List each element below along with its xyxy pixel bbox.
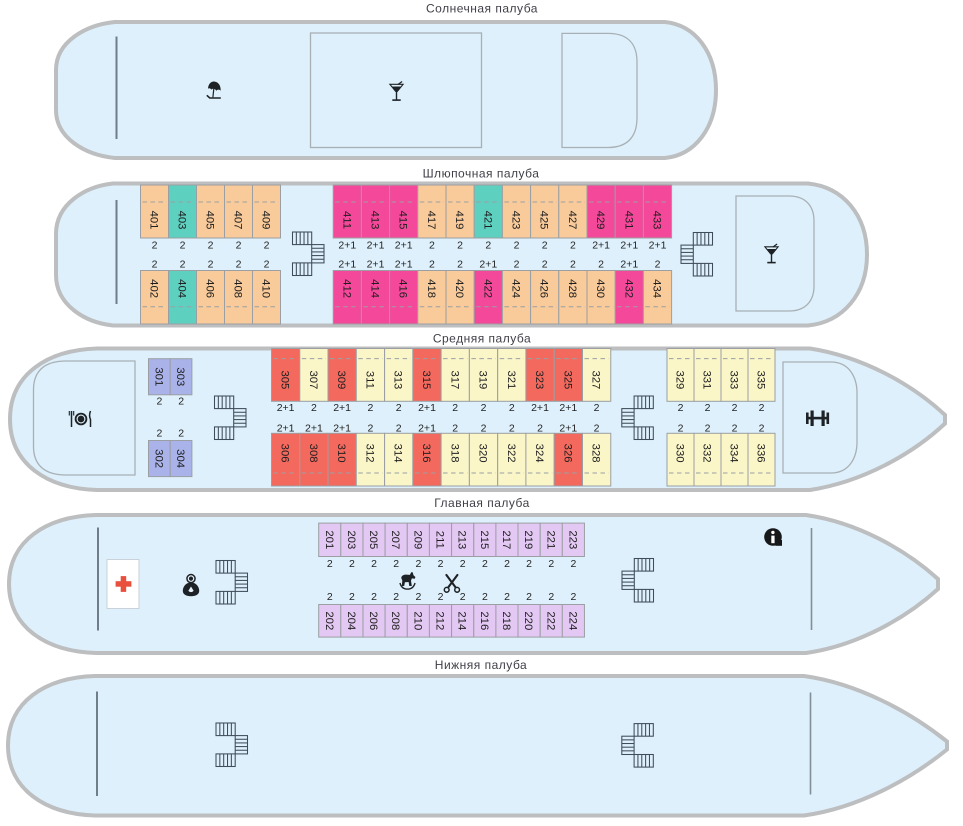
svg-text:2: 2: [514, 239, 520, 251]
svg-text:205: 205: [367, 530, 379, 549]
svg-text:Нижняя палуба: Нижняя палуба: [435, 658, 527, 672]
svg-text:430: 430: [594, 279, 606, 298]
svg-text:407: 407: [232, 211, 244, 230]
svg-text:Солнечная палуба: Солнечная палуба: [426, 2, 538, 16]
svg-text:417: 417: [425, 211, 437, 230]
svg-text:2: 2: [594, 422, 600, 434]
svg-text:2: 2: [429, 239, 435, 251]
svg-text:409: 409: [260, 211, 272, 230]
svg-text:Средняя палуба: Средняя палуба: [433, 332, 531, 346]
svg-text:414: 414: [369, 279, 381, 298]
svg-text:202: 202: [323, 611, 335, 630]
svg-text:216: 216: [478, 611, 490, 630]
svg-text:201: 201: [323, 530, 335, 549]
svg-text:426: 426: [538, 279, 550, 298]
svg-text:2: 2: [367, 402, 373, 414]
svg-text:2: 2: [156, 427, 162, 439]
svg-text:2+1: 2+1: [620, 259, 638, 271]
svg-text:2+1: 2+1: [395, 259, 413, 271]
svg-text:2+1: 2+1: [333, 402, 351, 414]
svg-text:315: 315: [420, 370, 432, 389]
svg-text:2: 2: [504, 558, 510, 570]
svg-text:322: 322: [505, 444, 517, 463]
svg-text:2: 2: [598, 259, 604, 271]
svg-text:336: 336: [755, 444, 767, 463]
svg-text:429: 429: [594, 211, 606, 230]
svg-text:2: 2: [208, 239, 214, 251]
svg-text:325: 325: [561, 370, 573, 389]
svg-text:2: 2: [264, 239, 270, 251]
svg-text:2+1: 2+1: [277, 422, 295, 434]
svg-text:415: 415: [397, 211, 409, 230]
svg-text:317: 317: [448, 370, 460, 389]
svg-text:2+1: 2+1: [620, 239, 638, 251]
svg-text:331: 331: [701, 370, 713, 389]
svg-text:306: 306: [279, 444, 291, 463]
svg-text:328: 328: [590, 444, 602, 463]
svg-text:2+1: 2+1: [531, 402, 549, 414]
svg-text:303: 303: [174, 367, 186, 386]
svg-text:2: 2: [542, 259, 548, 271]
svg-text:2: 2: [460, 558, 466, 570]
svg-text:311: 311: [363, 371, 375, 389]
svg-text:2: 2: [548, 558, 554, 570]
svg-text:223: 223: [566, 530, 578, 549]
svg-text:217: 217: [500, 530, 512, 549]
svg-text:2: 2: [178, 395, 184, 407]
svg-text:2: 2: [152, 259, 158, 271]
svg-text:2: 2: [152, 239, 158, 251]
svg-text:2: 2: [678, 402, 684, 414]
svg-text:427: 427: [566, 211, 578, 230]
svg-text:2+1: 2+1: [418, 402, 436, 414]
svg-text:2: 2: [460, 591, 466, 603]
svg-text:333: 333: [728, 370, 740, 389]
svg-text:416: 416: [397, 279, 409, 298]
svg-text:411: 411: [340, 211, 352, 229]
svg-text:314: 314: [392, 444, 404, 463]
svg-text:214: 214: [456, 611, 468, 630]
svg-text:301: 301: [152, 367, 164, 386]
svg-text:2: 2: [371, 591, 377, 603]
svg-text:420: 420: [453, 279, 465, 298]
svg-text:2+1: 2+1: [592, 239, 610, 251]
svg-text:2: 2: [457, 259, 463, 271]
svg-text:422: 422: [481, 279, 493, 298]
svg-text:2+1: 2+1: [479, 259, 497, 271]
svg-text:431: 431: [622, 211, 634, 230]
svg-text:302: 302: [152, 449, 164, 468]
svg-text:310: 310: [335, 444, 347, 463]
svg-text:2: 2: [180, 259, 186, 271]
svg-text:2+1: 2+1: [559, 402, 577, 414]
svg-text:2: 2: [438, 558, 444, 570]
svg-text:2+1: 2+1: [277, 402, 295, 414]
svg-text:2: 2: [452, 422, 458, 434]
svg-text:309: 309: [335, 370, 347, 389]
svg-text:2+1: 2+1: [305, 422, 323, 434]
svg-text:402: 402: [148, 279, 160, 298]
svg-text:2: 2: [393, 591, 399, 603]
svg-text:432: 432: [622, 279, 634, 298]
svg-text:2: 2: [396, 402, 402, 414]
svg-text:2: 2: [759, 402, 765, 414]
svg-text:335: 335: [755, 370, 767, 389]
svg-text:2: 2: [178, 427, 184, 439]
svg-text:2: 2: [349, 591, 355, 603]
svg-text:2: 2: [393, 558, 399, 570]
svg-text:401: 401: [148, 211, 160, 230]
svg-text:2: 2: [180, 239, 186, 251]
svg-text:2: 2: [481, 402, 487, 414]
svg-text:316: 316: [420, 444, 432, 463]
svg-text:204: 204: [345, 611, 357, 630]
svg-text:406: 406: [204, 279, 216, 298]
svg-text:2: 2: [542, 239, 548, 251]
svg-text:433: 433: [651, 211, 663, 230]
svg-text:330: 330: [674, 444, 686, 463]
svg-text:321: 321: [505, 370, 517, 389]
svg-text:332: 332: [701, 444, 713, 463]
svg-text:2: 2: [396, 422, 402, 434]
svg-text:2: 2: [264, 259, 270, 271]
svg-text:208: 208: [389, 611, 401, 630]
svg-text:308: 308: [307, 444, 319, 463]
svg-text:329: 329: [674, 370, 686, 389]
svg-text:2: 2: [732, 402, 738, 414]
svg-text:2: 2: [655, 259, 661, 271]
svg-text:412: 412: [340, 279, 352, 298]
svg-text:419: 419: [453, 211, 465, 230]
svg-text:2: 2: [481, 422, 487, 434]
svg-text:408: 408: [232, 279, 244, 298]
svg-text:425: 425: [538, 211, 550, 230]
svg-text:2+1: 2+1: [333, 422, 351, 434]
svg-text:2: 2: [482, 591, 488, 603]
svg-text:405: 405: [204, 211, 216, 230]
svg-text:334: 334: [728, 444, 740, 463]
svg-text:203: 203: [345, 530, 357, 549]
svg-text:434: 434: [651, 279, 663, 298]
svg-text:2+1: 2+1: [418, 422, 436, 434]
svg-text:313: 313: [392, 370, 404, 389]
svg-text:2: 2: [705, 402, 711, 414]
svg-text:220: 220: [522, 611, 534, 630]
svg-text:2+1: 2+1: [338, 239, 356, 251]
svg-text:418: 418: [425, 279, 437, 298]
svg-text:211: 211: [434, 531, 446, 549]
svg-text:2: 2: [349, 558, 355, 570]
svg-text:423: 423: [510, 211, 522, 230]
svg-text:2: 2: [732, 422, 738, 434]
svg-text:2+1: 2+1: [649, 239, 667, 251]
svg-text:413: 413: [369, 211, 381, 230]
svg-text:2: 2: [452, 402, 458, 414]
svg-text:2: 2: [759, 422, 765, 434]
svg-text:2: 2: [526, 591, 532, 603]
svg-text:2: 2: [485, 239, 491, 251]
svg-text:221: 221: [544, 530, 556, 549]
svg-text:210: 210: [411, 611, 423, 630]
svg-text:2: 2: [371, 558, 377, 570]
svg-text:2: 2: [236, 239, 242, 251]
svg-text:326: 326: [561, 444, 573, 463]
svg-text:410: 410: [260, 279, 272, 298]
svg-text:2: 2: [482, 558, 488, 570]
svg-text:404: 404: [176, 279, 188, 298]
svg-text:2: 2: [678, 422, 684, 434]
svg-text:2: 2: [156, 395, 162, 407]
svg-text:2: 2: [705, 422, 711, 434]
svg-text:224: 224: [566, 611, 578, 630]
svg-text:2+1: 2+1: [367, 259, 385, 271]
svg-text:215: 215: [478, 530, 490, 549]
svg-text:2+1: 2+1: [367, 239, 385, 251]
svg-text:2: 2: [514, 259, 520, 271]
svg-text:2: 2: [570, 259, 576, 271]
svg-text:2: 2: [429, 259, 435, 271]
svg-text:2: 2: [208, 259, 214, 271]
svg-text:2: 2: [236, 259, 242, 271]
svg-text:212: 212: [434, 611, 446, 630]
svg-text:307: 307: [307, 370, 319, 389]
svg-text:Шлюпочная палуба: Шлюпочная палуба: [423, 167, 540, 181]
svg-text:222: 222: [544, 611, 556, 630]
svg-text:424: 424: [510, 279, 522, 298]
svg-text:213: 213: [456, 530, 468, 549]
svg-text:Главная палуба: Главная палуба: [434, 496, 530, 510]
svg-text:2: 2: [526, 558, 532, 570]
svg-text:2: 2: [548, 591, 554, 603]
svg-text:2: 2: [594, 402, 600, 414]
svg-text:327: 327: [590, 370, 602, 389]
svg-text:320: 320: [477, 444, 489, 463]
svg-text:2: 2: [509, 402, 515, 414]
svg-text:2: 2: [570, 239, 576, 251]
svg-text:428: 428: [566, 279, 578, 298]
svg-text:2: 2: [327, 591, 333, 603]
svg-text:319: 319: [477, 370, 489, 389]
svg-text:2: 2: [311, 402, 317, 414]
svg-text:2: 2: [415, 591, 421, 603]
svg-text:2: 2: [457, 239, 463, 251]
svg-text:2+1: 2+1: [395, 239, 413, 251]
svg-text:318: 318: [448, 444, 460, 463]
svg-text:2: 2: [509, 422, 515, 434]
svg-text:218: 218: [500, 611, 512, 630]
svg-text:206: 206: [367, 611, 379, 630]
svg-text:2: 2: [327, 558, 333, 570]
svg-text:2+1: 2+1: [559, 422, 577, 434]
svg-text:209: 209: [411, 530, 423, 549]
svg-text:2: 2: [504, 591, 510, 603]
svg-text:2: 2: [570, 558, 576, 570]
svg-text:2: 2: [438, 591, 444, 603]
svg-text:421: 421: [481, 211, 493, 230]
svg-text:2: 2: [537, 422, 543, 434]
svg-text:305: 305: [279, 370, 291, 389]
svg-text:312: 312: [363, 444, 375, 463]
svg-text:2: 2: [415, 558, 421, 570]
svg-text:2+1: 2+1: [338, 259, 356, 271]
svg-text:304: 304: [174, 449, 186, 468]
svg-text:207: 207: [389, 530, 401, 549]
svg-text:323: 323: [533, 370, 545, 389]
svg-text:219: 219: [522, 530, 534, 549]
svg-text:2: 2: [367, 422, 373, 434]
svg-text:2: 2: [570, 591, 576, 603]
svg-text:403: 403: [176, 211, 188, 230]
svg-text:324: 324: [533, 444, 545, 463]
